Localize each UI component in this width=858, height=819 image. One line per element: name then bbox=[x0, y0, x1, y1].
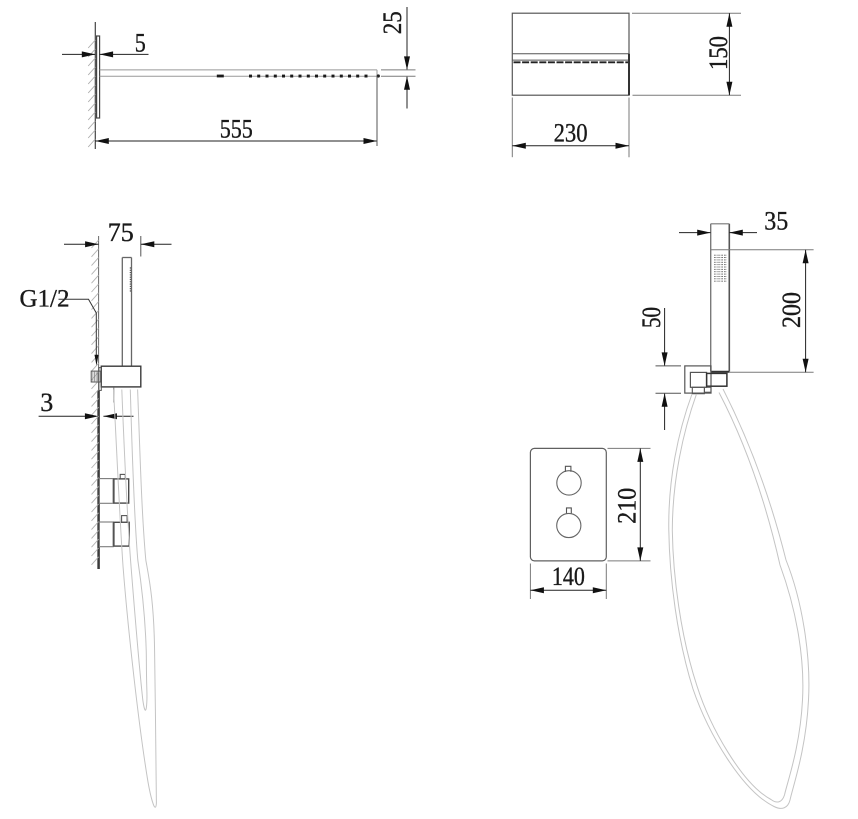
svg-text:5: 5 bbox=[135, 29, 146, 58]
svg-text:75: 75 bbox=[108, 218, 134, 247]
svg-text:230: 230 bbox=[554, 118, 588, 147]
svg-text:210: 210 bbox=[613, 488, 642, 524]
svg-text:35: 35 bbox=[764, 206, 788, 235]
svg-text:555: 555 bbox=[220, 115, 253, 144]
svg-text:200: 200 bbox=[777, 292, 806, 328]
svg-text:50: 50 bbox=[637, 307, 666, 328]
svg-text:140: 140 bbox=[552, 562, 585, 591]
svg-text:25: 25 bbox=[378, 11, 407, 34]
svg-text:150: 150 bbox=[704, 36, 733, 70]
svg-text:3: 3 bbox=[40, 388, 53, 417]
